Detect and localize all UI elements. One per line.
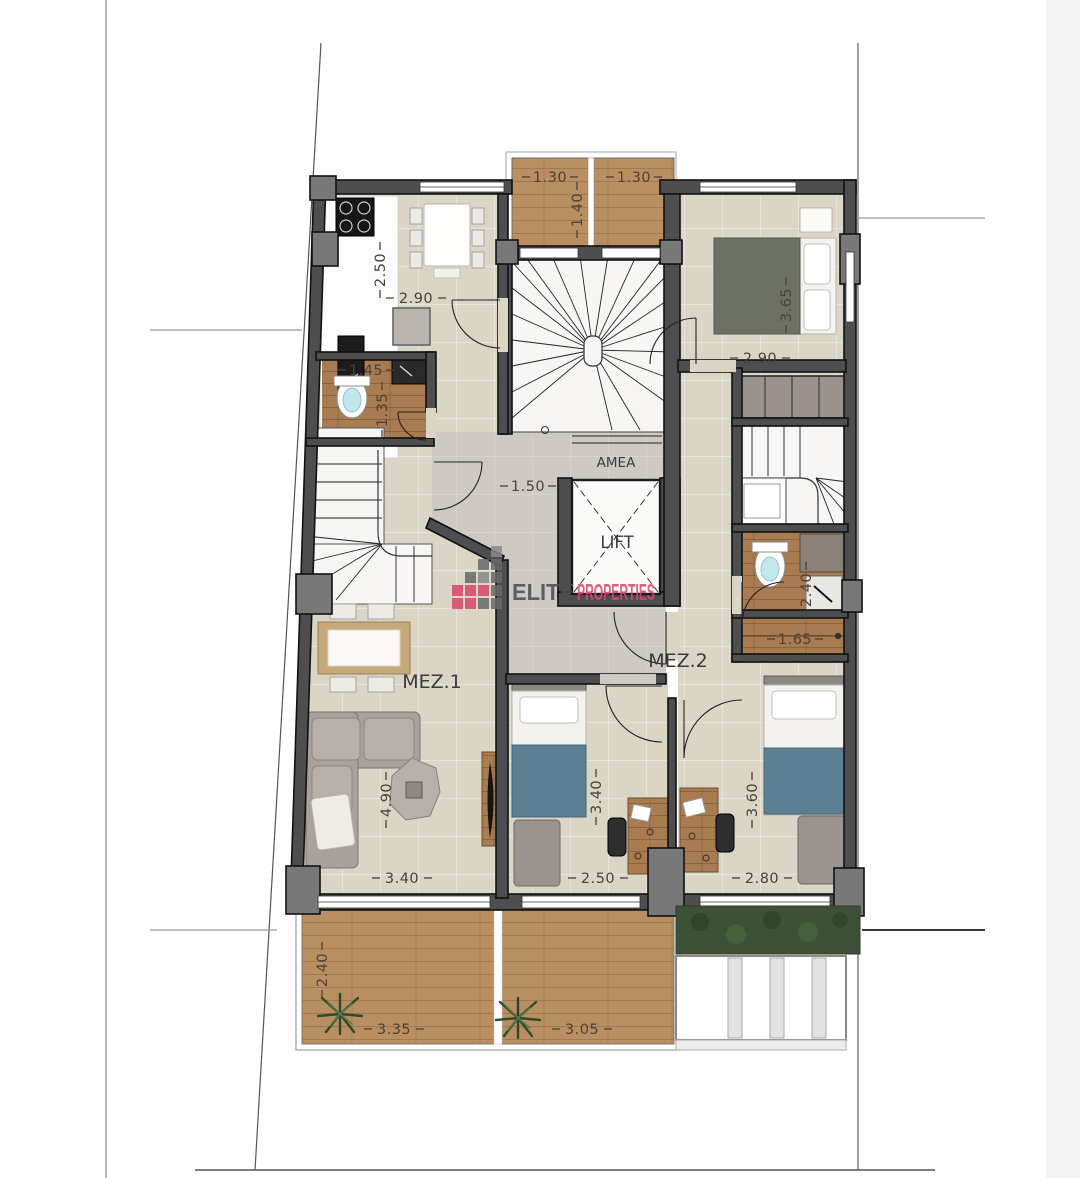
dim-bath1-width: 1.45: [349, 363, 383, 379]
thin-partition: [668, 698, 676, 850]
sofa-pillow: [311, 794, 356, 851]
right-margin-band: [1046, 0, 1080, 1178]
dim-closet-width: 1.65: [778, 632, 812, 648]
wardrobe: [738, 376, 846, 418]
dim-living-depth: 4.90: [379, 783, 395, 817]
dim-balcony-left: 1.30: [533, 170, 567, 186]
floor-plan-canvas: 1.30 1.30 1.40 2.50 2.90 1.45 1.35 3.65 …: [0, 0, 1080, 1178]
logo-text-elite: ELITE: [512, 579, 574, 605]
dim-terrace1-width: 3.35: [377, 1022, 411, 1038]
logo-text-properties: PROPERTIES: [577, 579, 655, 605]
dim-terrace2-width: 3.05: [565, 1022, 599, 1038]
floor-plan-svg: 1.30 1.30 1.40 2.50 2.90 1.45 1.35 3.65 …: [0, 0, 1080, 1178]
label-mez1: MEZ.1: [402, 671, 462, 693]
dim-hall-width: 1.50: [511, 479, 545, 495]
terraces: [296, 906, 680, 1050]
dim-master-depth: 3.65: [779, 288, 795, 322]
dim-master-width: 2.90: [743, 351, 777, 367]
dim-terrace-depth: 2.40: [315, 953, 331, 987]
pergola: [676, 956, 846, 1050]
dim-bed2-width: 2.80: [745, 871, 779, 887]
kitchen-cabinet: [393, 308, 430, 345]
nightstand: [800, 208, 832, 232]
dim-balcony-right: 1.30: [617, 170, 651, 186]
dim-kitchen-width: 2.90: [399, 291, 433, 307]
closet-handle: [835, 633, 841, 639]
dim-bed1-depth: 3.40: [589, 780, 605, 814]
bath1-sink: [392, 360, 426, 384]
hedge-planter: [676, 906, 860, 954]
neighbor-hatch-right: [858, 218, 985, 930]
dim-bath2-depth: 2.40: [799, 573, 815, 607]
desk1-chair: [608, 818, 626, 856]
bath2-vanity: [800, 534, 848, 572]
bed1-bench: [514, 820, 560, 886]
dim-bed1-width: 2.50: [581, 871, 615, 887]
balconies: [506, 152, 676, 252]
neighbor-hatch-left: [150, 330, 302, 930]
label-amea: AMEA: [597, 455, 636, 471]
dim-living-width: 3.40: [385, 871, 419, 887]
label-mez2: MEZ.2: [648, 650, 708, 672]
dim-kitchen-depth: 2.50: [373, 253, 389, 287]
dim-balcony-depth: 1.40: [570, 193, 586, 227]
bed2-headboard: [764, 676, 848, 685]
desk2-chair: [716, 814, 734, 852]
mez2-stairs: [734, 424, 849, 526]
dim-bed2-depth: 3.60: [745, 783, 761, 817]
dining-table: [424, 204, 470, 266]
label-lift: LIFT: [600, 533, 634, 552]
dim-bath1-depth: 1.35: [375, 393, 391, 427]
communal-stairwell: [510, 252, 676, 443]
